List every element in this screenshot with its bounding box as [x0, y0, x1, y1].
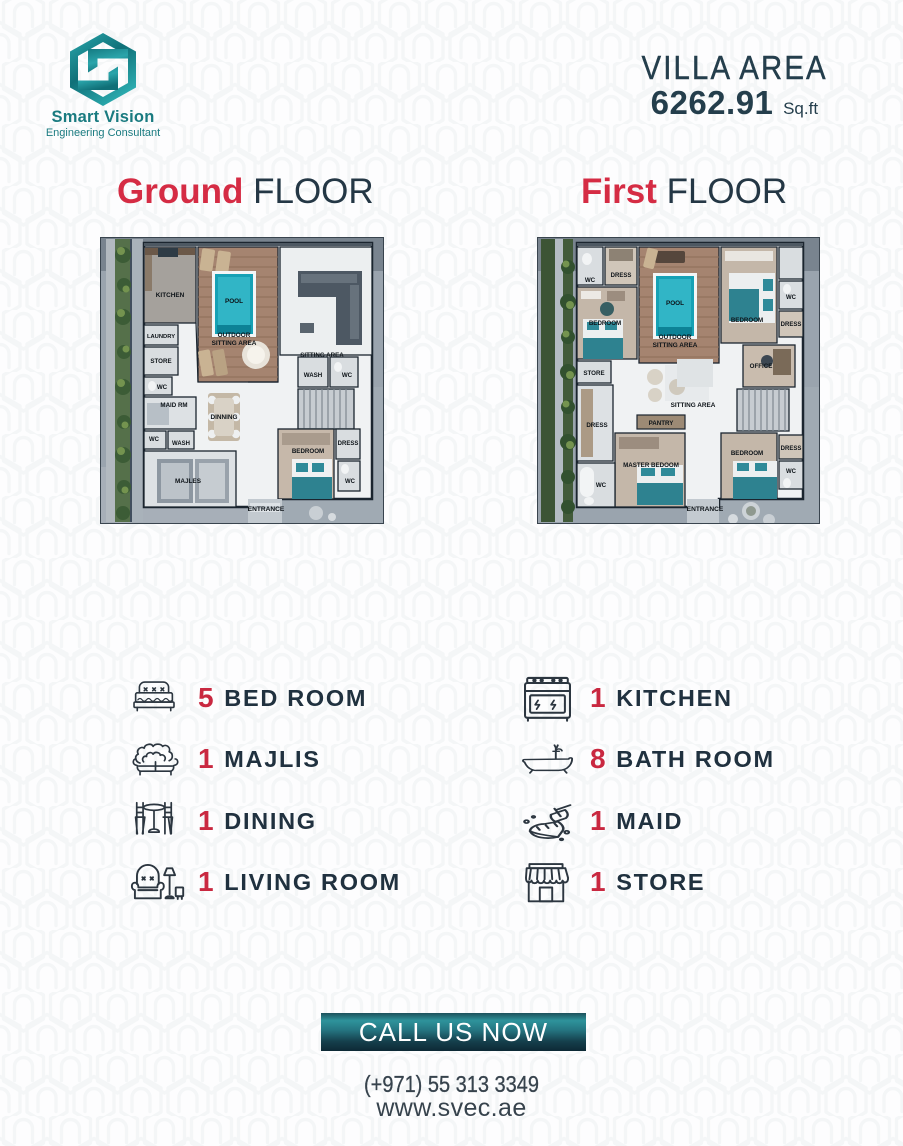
svg-text:STORE: STORE [150, 358, 171, 365]
svg-text:SITTING AREA: SITTING AREA [671, 402, 716, 409]
svg-text:POOL: POOL [666, 300, 684, 307]
svg-text:OUTDOOR: OUTDOOR [659, 334, 692, 341]
svg-text:WC: WC [345, 479, 356, 485]
svg-text:WC: WC [786, 469, 797, 475]
svg-text:STORE: STORE [583, 370, 604, 377]
svg-text:LAUNDRY: LAUNDRY [147, 334, 175, 340]
svg-text:BEDROOM: BEDROOM [589, 320, 621, 327]
svg-text:WC: WC [585, 277, 596, 284]
svg-text:SITTING AREA: SITTING AREA [212, 340, 257, 347]
svg-text:MAID RM: MAID RM [160, 402, 187, 409]
svg-text:MASTER BEDOOM: MASTER BEDOOM [623, 462, 679, 469]
svg-text:KITCHEN: KITCHEN [156, 292, 185, 299]
svg-text:WC: WC [786, 295, 797, 301]
svg-text:OFFICE: OFFICE [750, 363, 773, 370]
svg-text:BEDROOM: BEDROOM [731, 317, 763, 324]
svg-text:PANTRY: PANTRY [649, 420, 675, 427]
svg-text:ENTRANCE: ENTRANCE [248, 506, 285, 513]
svg-text:WC: WC [157, 384, 168, 391]
svg-text:DRESS: DRESS [338, 441, 359, 447]
svg-text:DRESS: DRESS [781, 322, 802, 328]
svg-text:MAJLES: MAJLES [175, 478, 202, 485]
svg-text:OUTDOOR: OUTDOOR [218, 332, 251, 339]
svg-text:WC: WC [342, 372, 353, 379]
svg-text:SITTING AREA: SITTING AREA [653, 342, 698, 349]
svg-text:DRESS: DRESS [586, 422, 607, 429]
svg-text:WC: WC [149, 437, 160, 443]
svg-text:BEDROOM: BEDROOM [292, 448, 324, 455]
svg-text:WASH: WASH [304, 372, 323, 379]
svg-text:WASH: WASH [172, 441, 190, 447]
svg-text:DRESS: DRESS [781, 446, 802, 452]
svg-text:DRESS: DRESS [611, 273, 632, 279]
svg-text:ENTRANCE: ENTRANCE [687, 506, 724, 513]
svg-text:BEDROOM: BEDROOM [731, 450, 763, 457]
svg-text:WC: WC [596, 482, 607, 489]
svg-text:POOL: POOL [225, 298, 243, 305]
svg-text:DINNING: DINNING [211, 414, 238, 421]
